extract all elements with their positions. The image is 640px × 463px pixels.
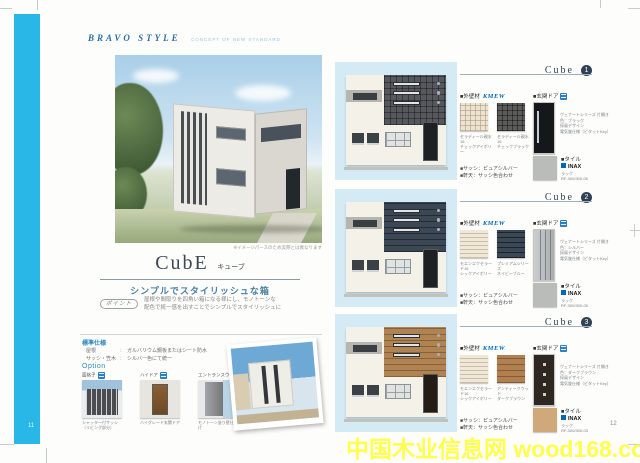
option-caption: シャッター付サッシ（リビング部分） — [82, 420, 124, 430]
swatch-caption: プレミアムシリーズネイビーブルー — [497, 261, 530, 276]
model-subtitle: シンプルでスタイリッシュな箱 — [100, 284, 300, 297]
section-divider — [460, 326, 592, 327]
door-caption: ヴェナートシリーズ 片開き色：ブラック採風デザイン電気錠仕様（ピタットKey） — [560, 112, 624, 134]
catalog-spread: 11 12 BRAVO STYLE CONCEPT OF NEW STANDAR… — [0, 0, 640, 463]
option-badge-icon — [560, 345, 567, 352]
point-line2: 配色で統一感を出すことでシンプルでスタイリッシュに — [144, 305, 281, 311]
door-caption: ヴェナートシリーズ 片開き色：ダークブラウン採風デザイン電気錠仕様（ピタットKe… — [560, 364, 624, 386]
cube-section-2: Cube 2 ■外壁材KMEW モエンエクセラード16シックアイボリー プレミア… — [335, 187, 627, 311]
house-render-image — [115, 55, 322, 243]
option-item: 面格子 シャッター付サッシ（リビング部分） — [82, 372, 124, 430]
section-divider — [460, 201, 592, 202]
option-badge-icon — [560, 220, 567, 227]
model-title-kana: キューブ — [217, 264, 245, 271]
spec-value: ガルバリウム鋼板またはシート防水 — [127, 348, 207, 354]
section-header: Cube 3 — [460, 312, 592, 330]
tile-heading: ■タイル — [561, 155, 581, 163]
wall-material-heading: ■外壁材KMEW — [460, 92, 505, 100]
brand-header: BRAVO STYLE CONCEPT OF NEW STANDARD — [88, 28, 281, 46]
spec-divider — [80, 334, 322, 335]
tile-swatch — [533, 283, 557, 307]
crop-mark — [600, 0, 601, 8]
spec-heading: 標準仕様 — [82, 338, 106, 347]
kmew-logo: KMEW — [483, 220, 505, 227]
page-number-left: 11 — [28, 423, 34, 429]
inax-logo: INAX — [561, 290, 581, 297]
tile-caption: ラックRF-300/300-05 — [561, 298, 621, 308]
spec-label: サッシ・笠木 — [86, 355, 116, 362]
door-swatch — [533, 102, 555, 154]
swatch-caption: アンティークウッドダークブラウン — [497, 386, 530, 401]
cube-section-1: Cube 1 ■外壁材KMEW セラディール親水16チェックアイボリー セラディ… — [335, 60, 627, 184]
elevation-drawing — [346, 202, 446, 292]
wall-swatch-1 — [460, 355, 488, 383]
point-line1: 屋根や間取りを四角い箱になる様にし、モノトーンな — [144, 297, 276, 303]
elevation-drawing — [346, 75, 446, 165]
side-accent-bar — [14, 14, 40, 444]
tile-caption: ラックRF-300/300-05 — [561, 171, 621, 181]
spec-notes: ■サッシ：ピュアシルバー■軒天：サッシ色合わせ — [460, 293, 518, 307]
option-label: 面格子 — [82, 373, 96, 378]
elevation-panel — [335, 62, 457, 180]
crop-mark — [634, 224, 635, 237]
door-swatch — [533, 229, 555, 281]
crop-mark — [0, 444, 14, 445]
wall-swatch-1 — [460, 103, 488, 131]
option-photo-door — [140, 380, 180, 418]
watermark-text: 中国木业信息网 wood168.com — [346, 430, 640, 463]
house-shadow — [179, 225, 322, 233]
wall-material-heading: ■外壁材KMEW — [460, 344, 505, 352]
option-badge-icon — [560, 93, 567, 100]
house-entrance — [286, 168, 300, 209]
polaroid-photo — [226, 337, 323, 431]
option-label: ハイドア — [140, 373, 158, 378]
spec-row: 屋根：ガルバリウム鋼板またはシート防水 — [86, 347, 207, 354]
cloud-art — [235, 85, 291, 101]
option-heading: Option — [82, 363, 106, 370]
option-caption: ハイグレード玄関ドア — [140, 420, 182, 425]
section-divider — [460, 74, 592, 75]
swatch-caption: モエンエクセラード16シックアイボリー — [460, 261, 493, 276]
render-caption: ※イメージパースのため実際とは異なります — [150, 245, 322, 251]
model-title: CubE — [155, 252, 209, 274]
wall-swatch-1 — [460, 230, 488, 258]
wall-swatch-2 — [497, 103, 525, 131]
tile-swatch — [533, 156, 557, 180]
option-photo-lattice — [82, 380, 122, 418]
brand-logo-text: BRAVO STYLE — [88, 33, 181, 43]
tile-heading: ■タイル — [561, 407, 581, 415]
crop-mark — [46, 448, 47, 463]
inax-logo: INAX — [561, 415, 581, 422]
swatch-caption: セラディール親水16チェックアイボリー — [460, 134, 493, 154]
option-item: ハイドア ハイグレード玄関ドア — [140, 372, 182, 425]
wall-material-heading: ■外壁材KMEW — [460, 219, 505, 227]
point-badge: ポイント — [100, 299, 138, 309]
crop-mark — [37, 0, 38, 10]
door-heading: ■玄関ドア — [533, 92, 567, 100]
tile-swatch — [533, 408, 557, 432]
vertical-slat-panel — [181, 111, 207, 205]
house-window — [216, 168, 246, 187]
point-description: 屋根や間取りを四角い箱になる様にし、モノトーンな 配色で統一感を出すことでシンプ… — [144, 297, 320, 312]
brand-tagline: CONCEPT OF NEW STANDARD — [191, 37, 281, 42]
spec-notes: ■サッシ：ピュアシルバー■軒天：サッシ色合わせ — [460, 166, 518, 180]
house-side-face — [255, 108, 307, 214]
wall-swatch-2 — [497, 230, 525, 258]
tile-heading: ■タイル — [561, 282, 581, 290]
model-title-row: CubE キューブ — [100, 252, 300, 275]
crop-mark — [0, 8, 12, 9]
section-header: Cube 1 — [460, 60, 592, 78]
option-badge-icon — [98, 372, 105, 379]
door-caption: ヴェナートシリーズ 片開き色：シルバー採風デザイン電気錠仕様（ピタットKey） — [560, 239, 624, 261]
door-swatch — [533, 354, 555, 406]
wall-swatch-2 — [497, 355, 525, 383]
house-front-face — [173, 103, 255, 218]
door-heading: ■玄関ドア — [533, 219, 567, 227]
swatch-caption: セラディール親水16チェックブラック — [497, 134, 530, 149]
house-window-band — [261, 124, 301, 142]
tree-art — [115, 83, 163, 175]
swatch-caption: モエンエクセラード16シックアイボリー — [460, 386, 493, 401]
kmew-logo: KMEW — [483, 345, 505, 352]
house-art — [173, 103, 311, 225]
elevation-panel — [335, 314, 457, 432]
house-window — [216, 126, 246, 141]
crop-mark — [628, 8, 640, 9]
spec-label: 屋根 — [86, 347, 116, 354]
inax-logo: INAX — [561, 163, 581, 170]
door-heading: ■玄関ドア — [533, 344, 567, 352]
cloud-art — [133, 69, 179, 83]
spec-value: シルバー色にて統一 — [127, 356, 172, 362]
crop-mark — [630, 230, 640, 231]
spec-row: サッシ・笠木：シルバー色にて統一 — [86, 355, 172, 362]
title-divider — [100, 279, 300, 280]
elevation-panel — [335, 189, 457, 307]
section-header: Cube 2 — [460, 187, 592, 205]
elevation-drawing — [346, 327, 446, 417]
kmew-logo: KMEW — [483, 93, 505, 100]
cube-section-3: Cube 3 ■外壁材KMEW モエンエクセラード16シックアイボリー アンティ… — [335, 312, 627, 436]
option-badge-icon — [160, 372, 167, 379]
